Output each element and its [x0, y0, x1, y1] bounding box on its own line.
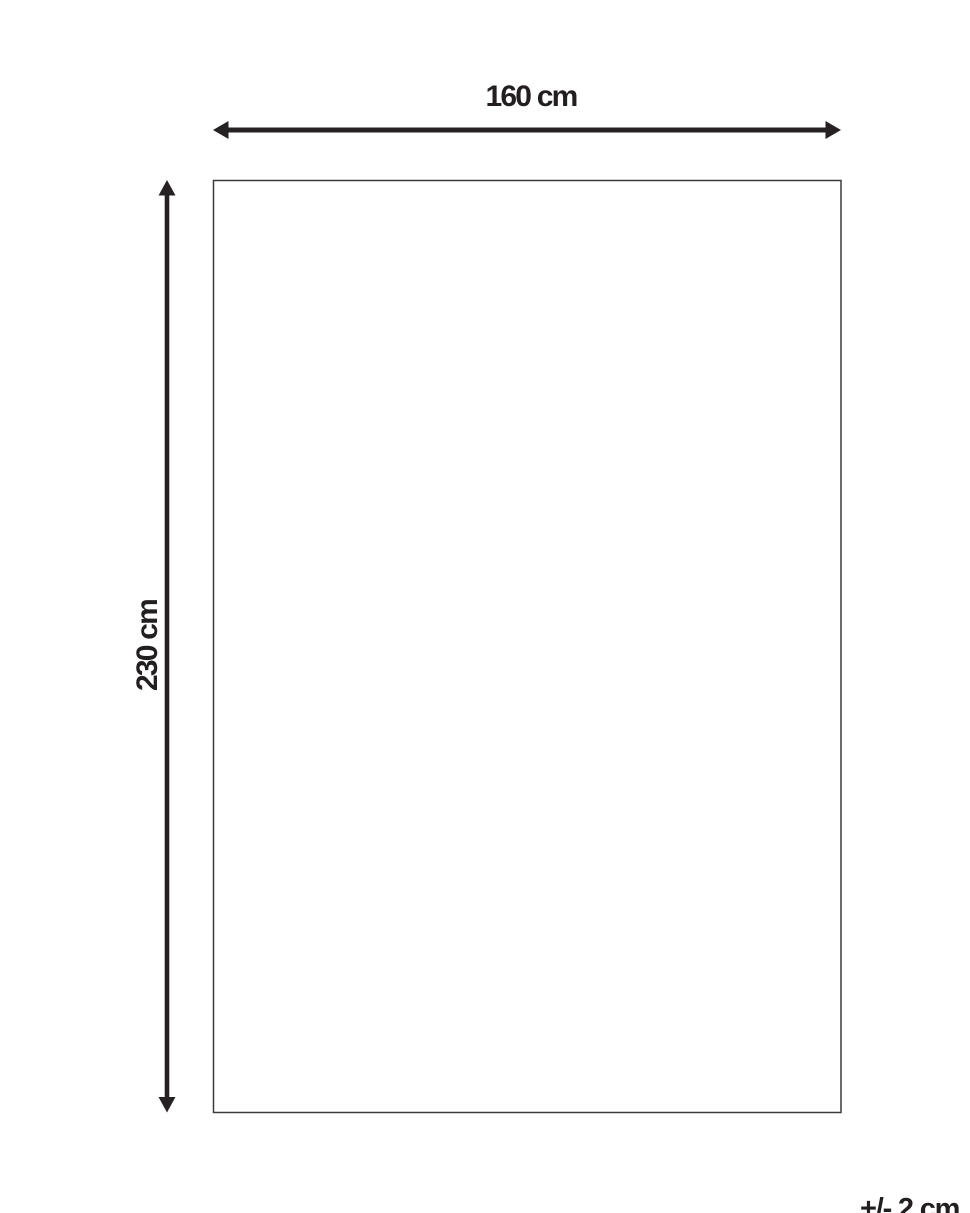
svg-text:230 cm: 230 cm — [131, 600, 164, 691]
svg-text:+/- 2 cm: +/- 2 cm — [860, 1193, 959, 1213]
svg-text:160 cm: 160 cm — [486, 80, 577, 113]
